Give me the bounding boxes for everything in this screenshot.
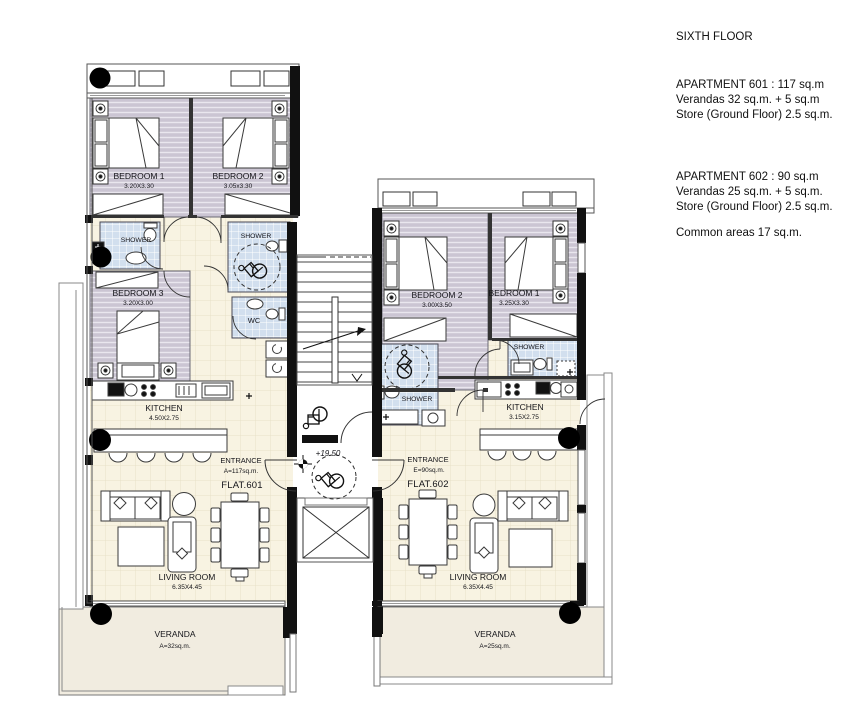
room-label-kitchen-602: KITCHEN (506, 403, 543, 412)
room-label-shower1-602: SHOWER (402, 397, 433, 404)
flat-number-601: FLAT.601 (221, 481, 263, 491)
room-dims-kitchen-602: 3.15X2.75 (509, 415, 539, 422)
apartment-602-store: Store (Ground Floor) 2.5 sq.m. (676, 201, 833, 213)
room-label-bedroom2-601: BEDROOM 2 (212, 172, 263, 181)
apartment-601-title: APARTMENT 601 : 117 sq.m (676, 79, 824, 91)
apartment-601-store: Store (Ground Floor) 2.5 sq.m. (676, 109, 833, 121)
room-label-bedroom3-601: BEDROOM 3 (112, 289, 163, 298)
room-dims-bedroom2-602: 3.00X3.50 (422, 303, 452, 310)
veranda-area-601: A=32sq.m. (159, 644, 190, 651)
room-dims-bedroom1-602: 3.25X3.30 (499, 301, 529, 308)
veranda-label-601: VERANDA (154, 630, 195, 639)
room-label-bedroom2-602: BEDROOM 2 (411, 291, 462, 300)
veranda-label-602: VERANDA (474, 630, 515, 639)
level-label: +19.50 (316, 450, 341, 458)
room-label-bedroom1-601: BEDROOM 1 (113, 172, 164, 181)
entrance-area-601: A=117sq.m. (224, 469, 258, 476)
entrance-label-601: ENTRANCE (220, 457, 261, 465)
veranda-area-602: A=25sq.m. (479, 644, 510, 651)
floor-title: SIXTH FLOOR (676, 31, 753, 43)
apartment-602-title: APARTMENT 602 : 90 sq.m (676, 171, 819, 183)
room-dims-living-601: 6.35X4.45 (172, 585, 202, 592)
level-marker-icon (294, 455, 312, 473)
floor-plan-drawing (0, 0, 660, 723)
room-dims-bedroom1-601: 3.20X3.30 (124, 184, 154, 191)
apartment-602-verandas: Verandas 25 sq.m. + 5 sq.m. (676, 186, 823, 198)
apartment-601-verandas: Verandas 32 sq.m. + 5 sq.m (676, 94, 820, 106)
room-label-shower1-601: SHOWER (121, 238, 152, 245)
wheelchair-icon (315, 464, 347, 496)
room-label-shower2-601: SHOWER (241, 234, 272, 241)
room-label-living-601: LIVING ROOM (159, 573, 216, 582)
floorplan-page: BEDROOM 1 3.20X3.30 BEDROOM 2 3.05x3.30 … (0, 0, 857, 723)
staircase (297, 255, 372, 443)
common-areas: Common areas 17 sq.m. (676, 227, 802, 239)
room-label-living-602: LIVING ROOM (450, 573, 507, 582)
elevator (297, 498, 373, 562)
room-label-kitchen-601: KITCHEN (145, 404, 182, 413)
room-dims-kitchen-601: 4.50X2.75 (149, 416, 179, 423)
entrance-label-602: ENTRANCE (407, 456, 448, 464)
wheelchair-icon (303, 407, 327, 429)
room-dims-bedroom2-601: 3.05x3.30 (224, 184, 253, 191)
room-dims-bedroom3-601: 3.20X3.00 (123, 301, 153, 308)
room-dims-living-602: 6.35X4.45 (463, 585, 493, 592)
room-label-bedroom1-602: BEDROOM 1 (488, 289, 539, 298)
room-label-wc-601: WC (248, 317, 261, 325)
entrance-area-602: E=90sq.m. (413, 468, 444, 475)
room-label-shower2-602: SHOWER (514, 345, 545, 352)
flat-number-602: FLAT.602 (407, 480, 449, 490)
